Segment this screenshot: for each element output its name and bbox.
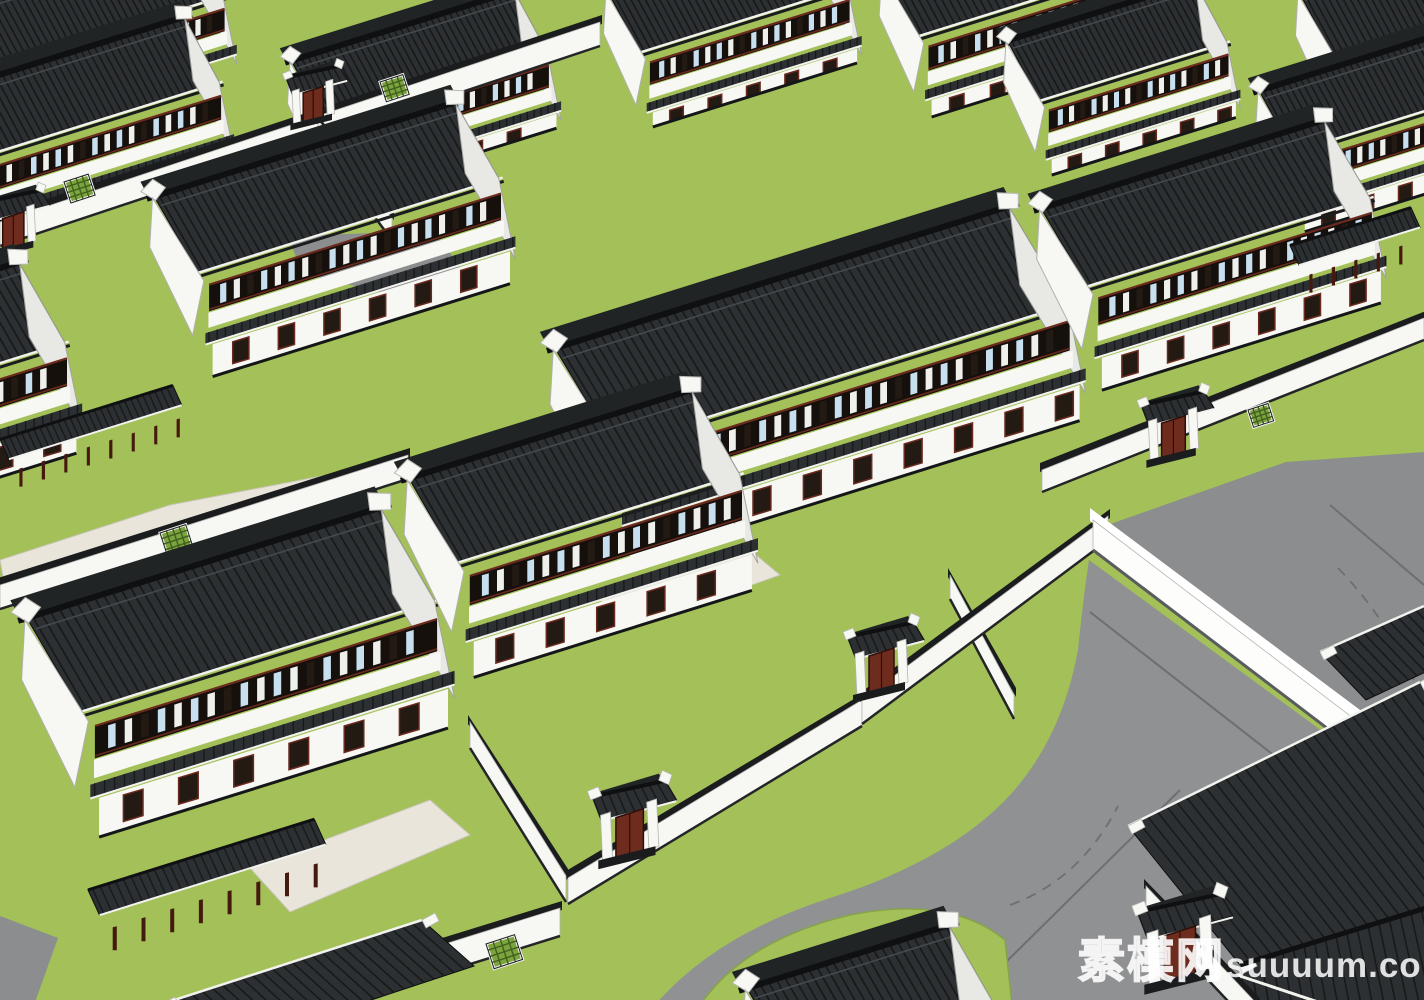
balcony-window (11, 377, 17, 399)
balcony-window (117, 129, 123, 148)
corridor-post (199, 899, 203, 923)
corridor-post (256, 881, 260, 905)
ground-window (179, 772, 199, 804)
gate-post (1199, 915, 1213, 973)
balcony-window (1159, 77, 1164, 94)
balcony-window (1178, 275, 1184, 296)
balcony-window (190, 106, 196, 125)
balcony-window (516, 76, 521, 94)
balcony-window (774, 24, 779, 42)
balcony-window (202, 103, 208, 122)
corridor-post (142, 917, 146, 941)
balcony-window (910, 372, 917, 395)
balcony-window (820, 400, 827, 423)
ground-window (1350, 279, 1366, 306)
balcony-window (166, 114, 172, 133)
balcony-window (330, 248, 336, 269)
balcony-window (671, 57, 676, 75)
ground-window (415, 280, 431, 307)
balcony-window (603, 535, 610, 558)
balcony-window (790, 410, 797, 433)
gable-cap (175, 6, 192, 19)
gable-cap (937, 912, 958, 928)
balcony-window (504, 80, 509, 98)
ground-window (803, 470, 821, 500)
sketchup-render-viewport: 素模网suuuum.com (0, 0, 1424, 1000)
balcony-window (1380, 139, 1385, 157)
corridor-post (314, 863, 318, 887)
balcony-window (153, 118, 159, 137)
balcony-window (234, 278, 240, 299)
ground-window (1304, 294, 1320, 321)
balcony-window (466, 205, 472, 226)
balcony-window (705, 46, 710, 64)
balcony-window (1080, 102, 1085, 119)
corridor-post (132, 433, 135, 452)
balcony-window (289, 261, 295, 282)
balcony-window (1150, 283, 1156, 304)
balcony-window (679, 512, 686, 535)
gable-cap (368, 493, 391, 511)
corridor-post (87, 447, 90, 466)
corridor-post (1399, 246, 1402, 265)
balcony-window (0, 381, 3, 403)
balcony-window (7, 164, 13, 183)
balcony-window (493, 84, 498, 102)
corridor-post (113, 926, 117, 950)
corridor-post (154, 425, 157, 444)
balcony-window (709, 502, 716, 525)
balcony-window (763, 28, 768, 46)
balcony-window (774, 415, 781, 438)
balcony-window (208, 692, 215, 717)
balcony-window (724, 498, 731, 521)
balcony-window (728, 39, 733, 57)
balcony-window (19, 160, 25, 179)
ground-window (955, 423, 973, 453)
balcony-window (1109, 296, 1115, 317)
balcony-window (648, 521, 655, 544)
balcony-window (92, 137, 98, 156)
balcony-window (1164, 279, 1170, 300)
ground-window (370, 294, 386, 321)
corridor-post (19, 468, 22, 487)
balcony-window (835, 396, 842, 419)
balcony-window (129, 126, 135, 145)
balcony-window (207, 15, 212, 33)
balcony-window (195, 19, 200, 37)
balcony-window (220, 282, 226, 303)
balcony-window (729, 429, 736, 452)
balcony-window (926, 367, 933, 390)
balcony-window (987, 29, 993, 48)
balcony-window (191, 697, 199, 722)
balcony-window (759, 419, 766, 442)
corridor-post (228, 890, 232, 914)
balcony-window (1260, 249, 1266, 270)
ground-window (904, 439, 922, 469)
balcony-window (1170, 74, 1175, 91)
balcony-window (1136, 84, 1141, 101)
gable-cap (8, 249, 28, 264)
balcony-window (275, 265, 281, 286)
gate-post (1148, 419, 1158, 463)
balcony-window (412, 223, 418, 244)
balcony-window (439, 214, 445, 235)
balcony-window (986, 348, 993, 371)
balcony-window (682, 53, 687, 71)
balcony-window (744, 424, 751, 447)
balcony-window (1137, 287, 1143, 308)
balcony-window (158, 708, 166, 733)
ground-window (1168, 336, 1184, 363)
corridor-post (64, 454, 67, 473)
balcony-window (1191, 270, 1197, 291)
ground-window (123, 789, 143, 821)
gable-cap (1313, 108, 1332, 123)
balcony-window (1148, 81, 1153, 98)
balcony-window (956, 358, 963, 381)
balcony-window (805, 405, 812, 428)
balcony-window (809, 14, 814, 32)
balcony-window (740, 35, 745, 53)
balcony-window (512, 564, 519, 587)
balcony-window (125, 718, 132, 743)
ground-window (1213, 322, 1229, 349)
balcony-window (56, 149, 62, 168)
balcony-window (1403, 132, 1408, 150)
gate-post (27, 204, 36, 243)
balcony-window (694, 50, 699, 68)
ground-window (496, 634, 514, 664)
balcony-window (1069, 105, 1074, 122)
balcony-window (963, 37, 969, 56)
balcony-window (797, 17, 802, 35)
balcony-window (425, 218, 431, 239)
balcony-window (108, 723, 116, 748)
balcony-window (453, 210, 459, 231)
balcony-window (1114, 91, 1119, 108)
ground-window (344, 720, 364, 752)
balcony-window (618, 531, 625, 554)
balcony-window (241, 682, 249, 707)
balcony-window (1047, 329, 1054, 352)
balcony-window (371, 235, 377, 256)
balcony-window (1232, 257, 1238, 278)
balcony-window (588, 540, 595, 563)
balcony-window (820, 10, 825, 28)
balcony-window (406, 630, 414, 655)
balcony-window (1031, 334, 1038, 357)
balcony-window (717, 42, 722, 60)
balcony-window (1058, 109, 1063, 126)
balcony-window (865, 386, 872, 409)
corridor-post (1354, 260, 1357, 279)
balcony-window (1204, 63, 1209, 80)
balcony-window (178, 110, 184, 129)
gate-post (855, 651, 866, 697)
ground-window (234, 755, 254, 787)
balcony-window (323, 656, 331, 681)
balcony-window (786, 21, 791, 39)
balcony-window (497, 569, 504, 592)
ground-window (753, 486, 771, 516)
balcony-window (1219, 262, 1225, 283)
ground-window (289, 737, 309, 769)
balcony-window (26, 372, 33, 394)
balcony-window (1125, 88, 1130, 105)
balcony-window (527, 73, 532, 91)
gate-post (1188, 407, 1198, 451)
balcony-window (357, 645, 365, 670)
balcony-window (659, 60, 664, 78)
corridor-post (177, 418, 180, 437)
balcony-window (480, 201, 486, 222)
balcony-window (663, 517, 670, 540)
ground-window (546, 618, 564, 648)
balcony-window (573, 545, 580, 568)
corridor-post (42, 461, 45, 480)
balcony-window (481, 87, 486, 105)
corridor-post (1309, 274, 1312, 293)
corridor-post (1332, 267, 1335, 286)
balcony-window (1369, 142, 1374, 160)
ground-window (1055, 391, 1073, 421)
balcony-window (850, 391, 857, 414)
balcony-window (257, 677, 265, 702)
balcony-window (542, 554, 549, 577)
ground-window (698, 571, 716, 601)
balcony-window (938, 45, 944, 64)
balcony-window (1215, 60, 1220, 77)
architectural-model-scene (0, 0, 1424, 1000)
balcony-window (880, 381, 887, 404)
balcony-window (1246, 253, 1252, 274)
balcony-window (384, 231, 390, 252)
balcony-window (373, 640, 380, 665)
gable-cap (680, 376, 701, 392)
corridor-post (285, 872, 289, 896)
gate-post (897, 639, 908, 685)
balcony-window (832, 6, 837, 24)
ground-window (399, 703, 419, 735)
corridor-post (1377, 253, 1380, 272)
balcony-window (316, 252, 322, 273)
gate-post (647, 799, 659, 850)
balcony-window (1016, 339, 1023, 362)
balcony-window (1092, 98, 1097, 115)
balcony-window (224, 687, 232, 712)
balcony-window (68, 145, 74, 164)
ground-window (1259, 308, 1275, 335)
balcony-window (558, 550, 565, 573)
balcony-window (261, 270, 267, 291)
balcony-window (247, 274, 253, 295)
balcony-window (751, 32, 756, 50)
balcony-window (302, 257, 308, 278)
ground-window (324, 308, 340, 335)
balcony-window (895, 377, 902, 400)
balcony-window (343, 244, 349, 265)
ground-window (1005, 407, 1023, 437)
balcony-window (80, 141, 86, 160)
balcony-window (633, 526, 640, 549)
balcony-window (1103, 95, 1108, 112)
gable-cap (997, 193, 1018, 209)
balcony-window (694, 507, 701, 530)
balcony-window (1273, 245, 1279, 266)
gable-cap (445, 90, 464, 105)
ground-window (647, 586, 665, 616)
balcony-window (470, 91, 475, 109)
balcony-window (43, 152, 49, 171)
balcony-window (1415, 128, 1420, 146)
balcony-window (527, 559, 534, 582)
ground-window (233, 337, 249, 364)
ground-window (854, 454, 872, 484)
balcony-window (951, 41, 957, 60)
balcony-window (141, 122, 147, 141)
balcony-window (31, 156, 37, 175)
balcony-window (390, 635, 398, 660)
balcony-window (307, 661, 315, 686)
gate-post (1147, 930, 1161, 988)
balcony-window (1123, 292, 1129, 313)
balcony-window (40, 368, 47, 390)
balcony-window (290, 666, 297, 691)
corridor-post (109, 440, 112, 459)
balcony-window (941, 363, 948, 386)
gate-post (326, 79, 335, 116)
ground-window (278, 323, 294, 350)
gate-post (601, 812, 613, 863)
gate-post (292, 89, 301, 126)
balcony-window (1392, 135, 1397, 153)
balcony-window (1357, 146, 1362, 164)
balcony-window (174, 702, 182, 727)
corridor-post (170, 908, 174, 932)
balcony-window (357, 240, 363, 261)
balcony-window (104, 133, 110, 152)
balcony-window (482, 573, 489, 596)
balcony-window (141, 713, 149, 738)
ground-window (461, 266, 477, 293)
ground-window (1122, 351, 1138, 378)
balcony-window (1193, 67, 1198, 84)
ground-window (597, 602, 615, 632)
balcony-window (1205, 266, 1211, 287)
balcony-window (1001, 344, 1008, 367)
balcony-window (975, 33, 981, 52)
balcony-window (274, 671, 282, 696)
balcony-window (1181, 70, 1186, 87)
balcony-window (340, 651, 348, 676)
balcony-window (971, 353, 978, 376)
balcony-window (398, 227, 404, 248)
